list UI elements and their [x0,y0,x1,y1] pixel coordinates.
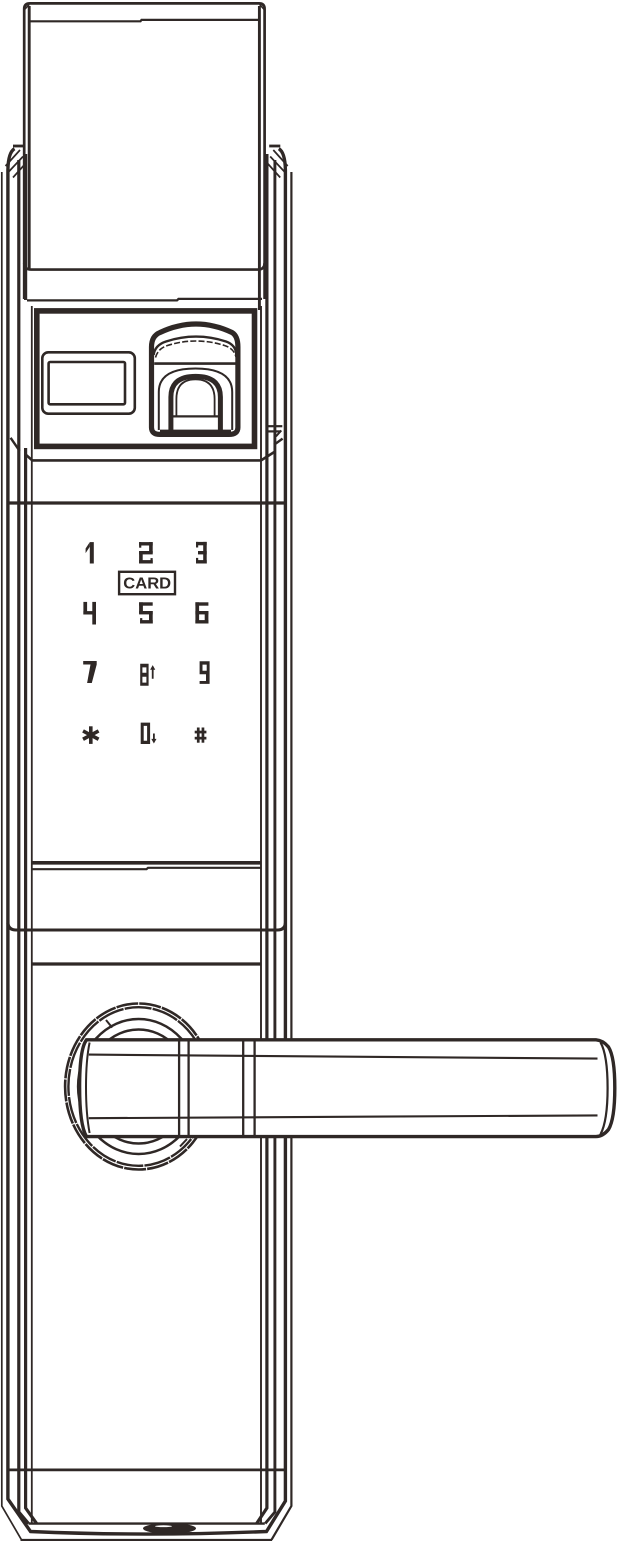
svg-text:CARD: CARD [123,576,171,593]
